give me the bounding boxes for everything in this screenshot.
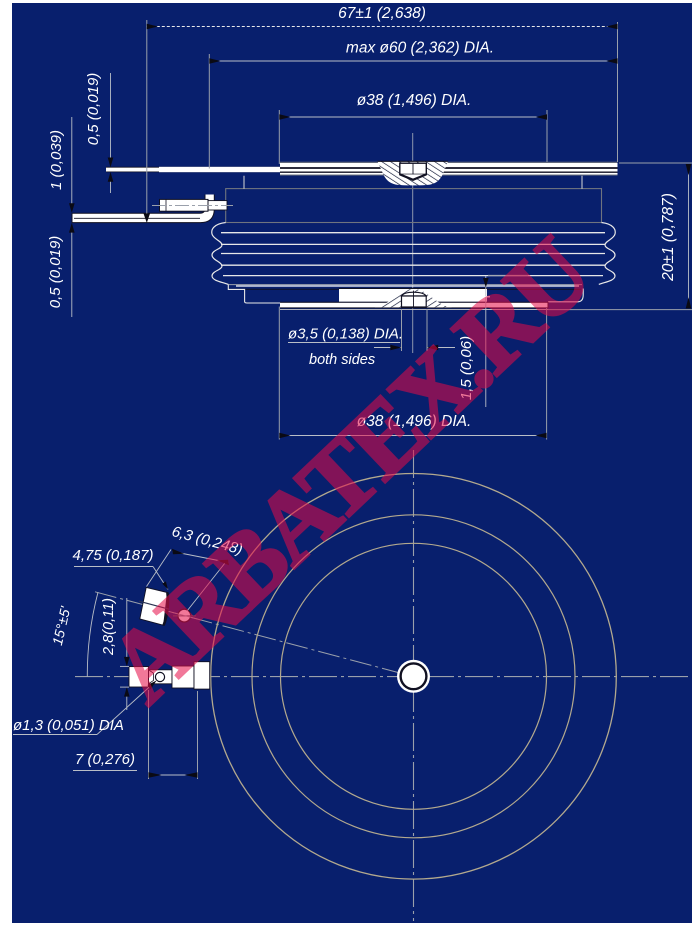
svg-text:ø1,3 (0,051) DIA: ø1,3 (0,051) DIA xyxy=(13,717,124,734)
svg-text:4,75 (0,187): 4,75 (0,187) xyxy=(73,547,154,564)
svg-text:both sides: both sides xyxy=(309,352,375,368)
svg-text:7 (0,276): 7 (0,276) xyxy=(75,751,135,768)
svg-text:1 (0,039): 1 (0,039) xyxy=(48,130,65,190)
svg-text:20±1 (0,787): 20±1 (0,787) xyxy=(660,193,677,282)
svg-text:0,5 (0,019): 0,5 (0,019) xyxy=(47,236,64,309)
svg-text:ø38 (1,496) DIA.: ø38 (1,496) DIA. xyxy=(357,92,472,109)
svg-text:max ø60 (2,362) DIA.: max ø60 (2,362) DIA. xyxy=(346,40,494,57)
svg-text:0,5 (0,019): 0,5 (0,019) xyxy=(85,73,102,146)
svg-text:ø3,5 (0,138) DIA.: ø3,5 (0,138) DIA. xyxy=(288,326,403,343)
svg-text:67±1 (2,638): 67±1 (2,638) xyxy=(338,5,426,22)
